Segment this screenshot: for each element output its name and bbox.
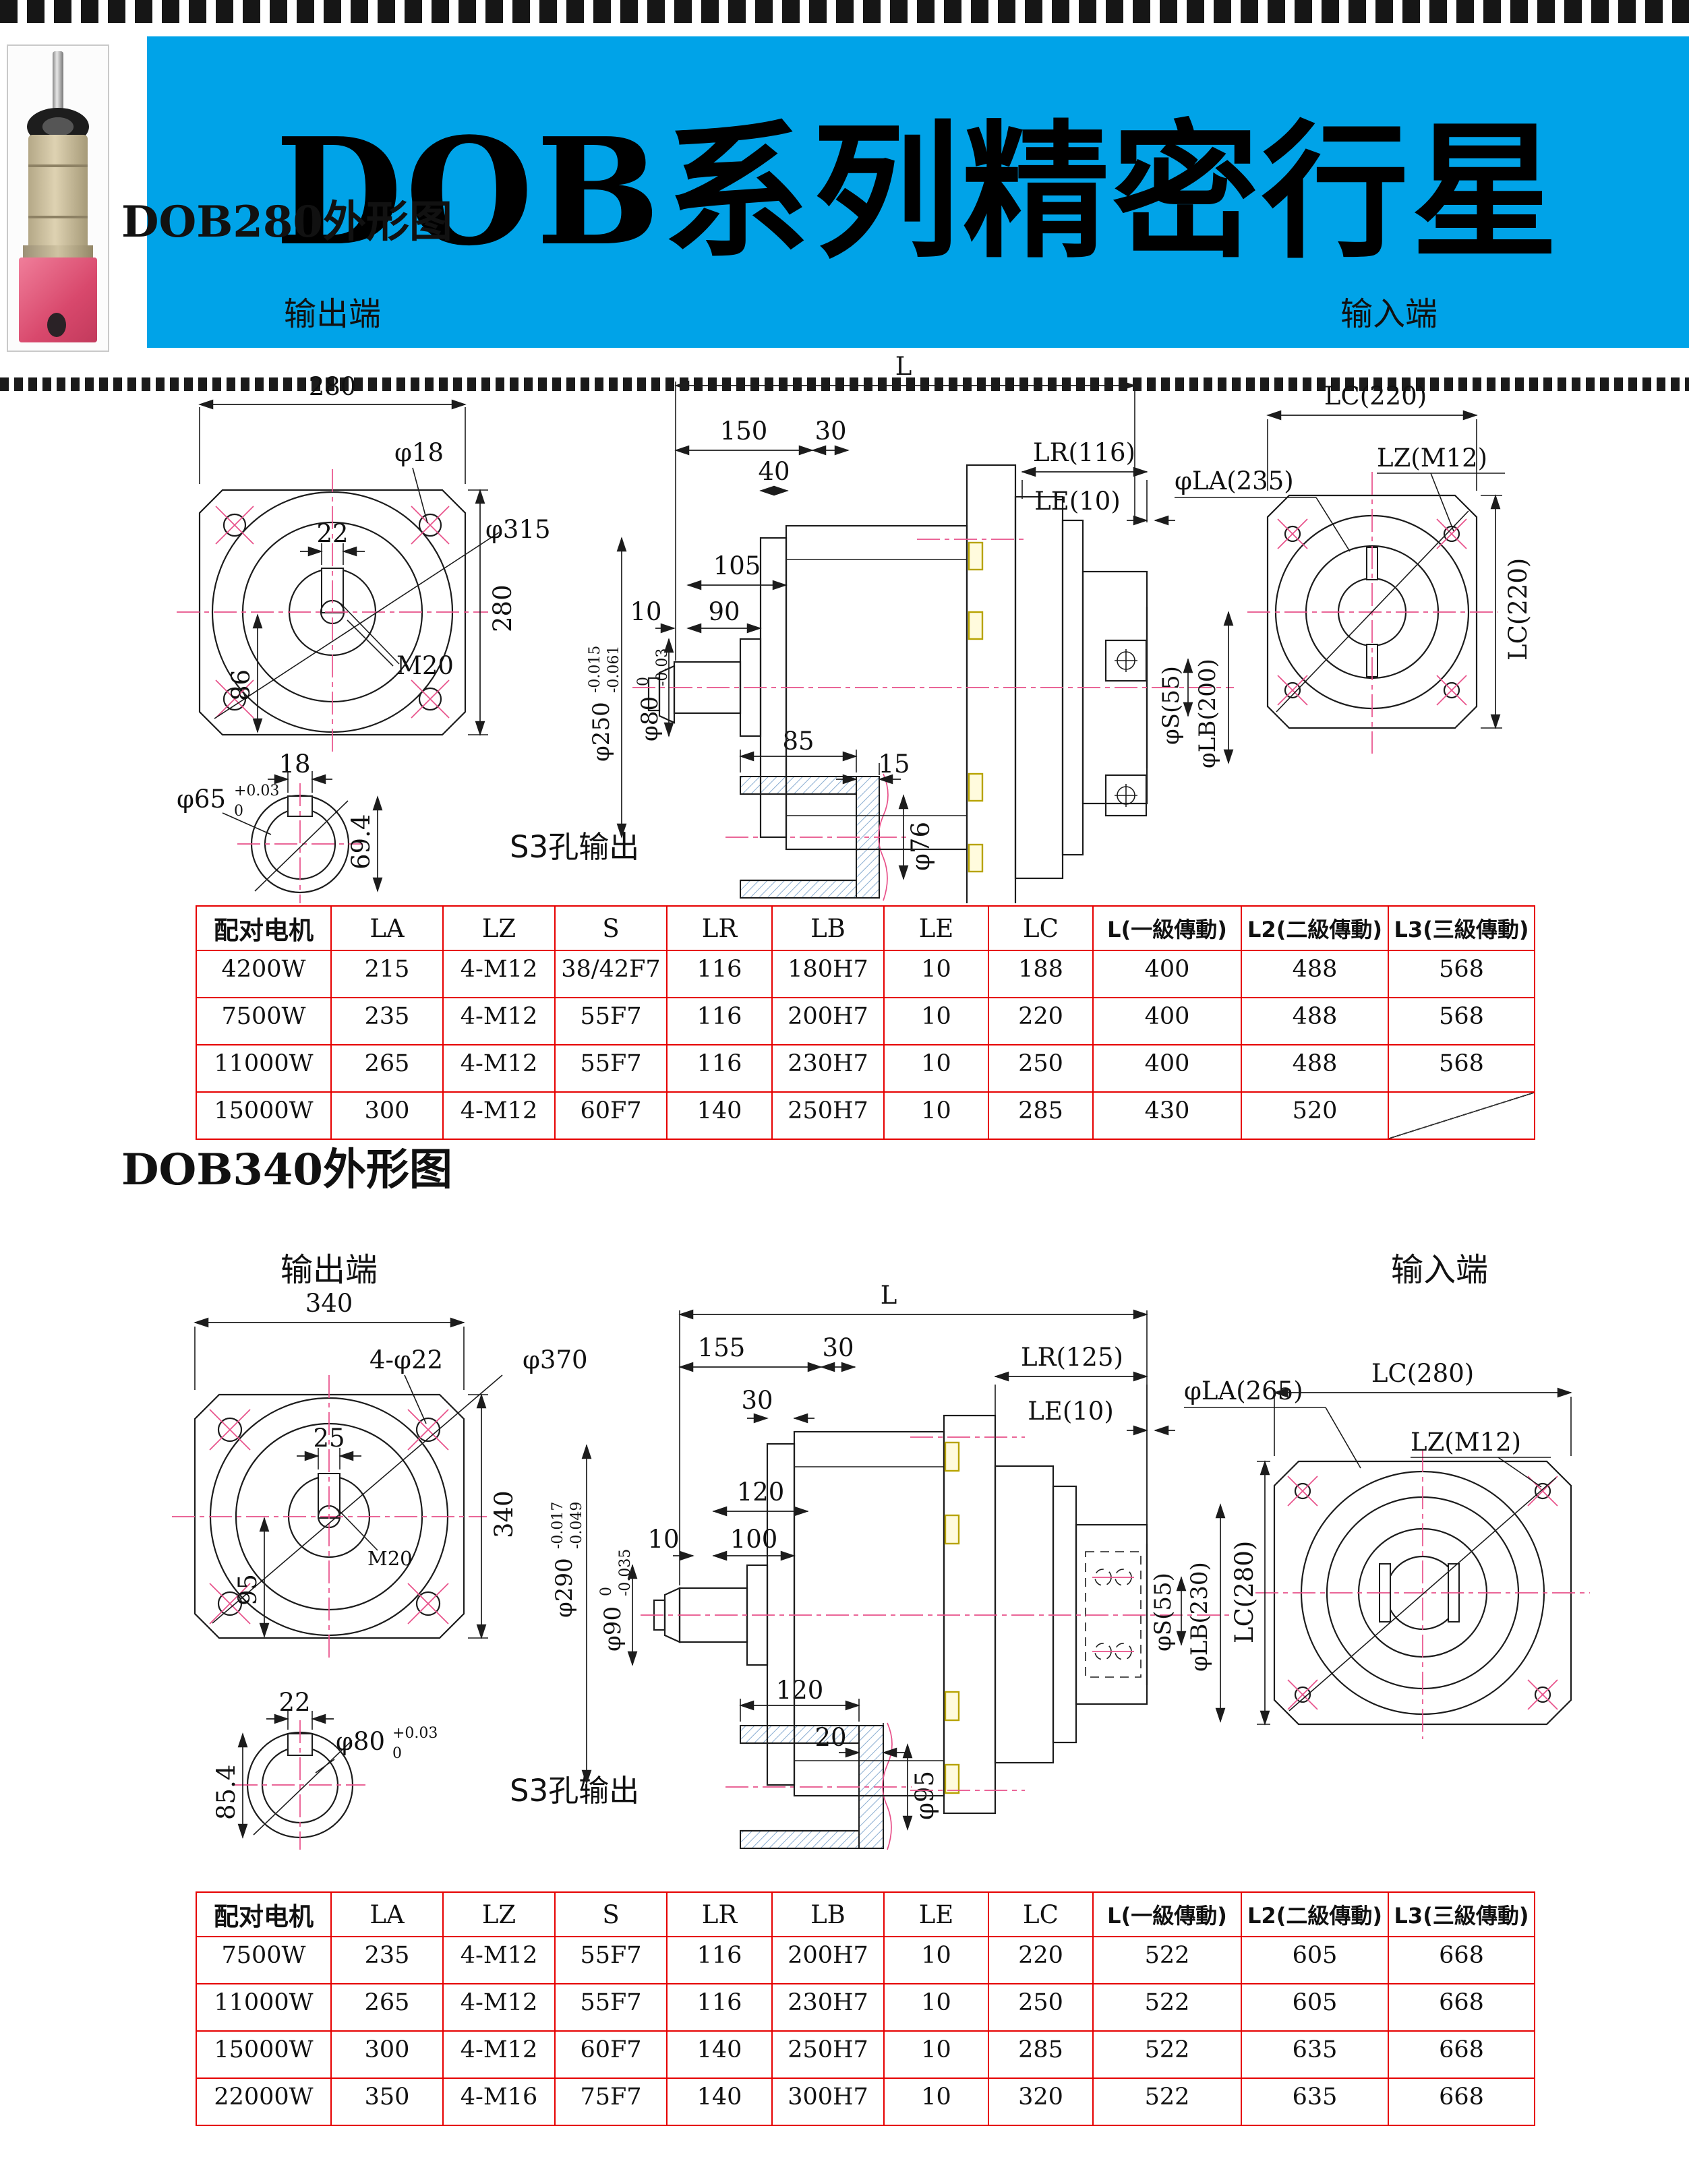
dim-LR: LR(116) xyxy=(1033,438,1135,467)
col-la: LA xyxy=(331,906,443,950)
dim-LC-top: LC(220) xyxy=(1324,382,1427,411)
dob280-output-flange: 280 280 φ18 φ315 22 86 M20 xyxy=(177,372,551,755)
dim-LC-side: LC(280) xyxy=(1230,1541,1259,1643)
svg-text:-0.049: -0.049 xyxy=(568,1502,585,1549)
s3-output-label: S3孔输出 xyxy=(510,829,639,865)
photo-gearbox-body xyxy=(28,135,88,255)
col-l2: L2(二級傳動) xyxy=(1241,906,1388,950)
dob280-spec-table: 配对电机 LA LZ S LR LB LE LC L(一級傳動) L2(二級傳動… xyxy=(196,905,1535,1140)
dob280-shaft-detail: φ65 +0.03 0 18 69.4 xyxy=(177,750,378,903)
col-s: S xyxy=(555,1892,667,1937)
col-lc: LC xyxy=(988,906,1093,950)
dim-L: L xyxy=(881,1281,897,1310)
table-row: 7500W2354-M1255F7116200H710220522605668 xyxy=(196,1937,1535,1984)
svg-text:-0.061: -0.061 xyxy=(605,646,622,693)
dim-LZ: LZ(M12) xyxy=(1411,1428,1521,1457)
page-title: DOB系列精密行星 xyxy=(275,119,1561,266)
table-row: 22000W3504-M1675F7140300H710320522635668 xyxy=(196,2078,1535,2125)
svg-text:φ250: φ250 xyxy=(588,702,615,762)
dim-LC-side: LC(220) xyxy=(1504,558,1533,661)
dim-10: 10 xyxy=(630,597,661,626)
svg-text:-0.035: -0.035 xyxy=(617,1549,634,1596)
dim-340-height: 340 xyxy=(490,1490,518,1538)
col-l1: L(一級傳動) xyxy=(1093,906,1241,950)
dim-phi65-tol-upper: +0.03 xyxy=(234,783,279,799)
col-le: LE xyxy=(884,1892,988,1937)
bolts xyxy=(945,1443,959,1793)
dim-120: 120 xyxy=(776,1676,824,1705)
dim-69-4: 69.4 xyxy=(347,814,376,870)
dob280-input-flange: LC(220) LZ(M12) LC(220) xyxy=(1247,382,1533,754)
table-row: 4200W2154-M1238/42F7116180H7101884004885… xyxy=(196,950,1535,998)
dim-key-width: 25 xyxy=(313,1424,345,1453)
svg-text:-0.015: -0.015 xyxy=(587,646,603,693)
dim-30: 30 xyxy=(814,417,846,446)
svg-text:φ290: φ290 xyxy=(551,1558,578,1618)
dob340-output-flange: 340 4-φ22 φ370 25 95 M20 340 xyxy=(172,1289,588,1660)
dim-30a: 30 xyxy=(822,1333,854,1362)
dim-bolt-circle: φ315 xyxy=(485,515,551,544)
input-end-label: 输入端 xyxy=(1340,295,1438,333)
svg-text:0: 0 xyxy=(635,677,652,686)
dim-280-width: 280 xyxy=(309,372,357,401)
photo-flange xyxy=(23,245,93,259)
section-title-dob280: DOB280外形图 xyxy=(121,201,452,244)
col-lz: LZ xyxy=(443,906,555,950)
dim-LA: φLA(265) xyxy=(1184,1376,1303,1405)
svg-text:-0.017: -0.017 xyxy=(550,1502,566,1549)
dim-phi290: φ290 -0.017 -0.049 xyxy=(550,1502,585,1618)
dob340-shaft-detail: 22 φ80 +0.03 0 85.4 xyxy=(212,1688,438,1850)
dim-LE: LE(10) xyxy=(1034,487,1121,516)
dob340-input-flange: LC(280) LZ(M12) LC(280) xyxy=(1230,1359,1590,1739)
dim-340-width: 340 xyxy=(305,1289,353,1318)
output-end-label: 输出端 xyxy=(284,295,381,333)
dob340-s3-detail: 120 20 φ95 xyxy=(725,1676,939,1850)
col-lr: LR xyxy=(667,1892,772,1937)
dim-LC-top: LC(280) xyxy=(1371,1359,1474,1388)
dim-40: 40 xyxy=(758,457,790,486)
dim-phi80-tol-upper: +0.03 xyxy=(392,1725,438,1742)
dim-LZ: LZ(M12) xyxy=(1377,444,1487,473)
dim-105: 105 xyxy=(713,551,761,580)
col-lz: LZ xyxy=(443,1892,555,1937)
s3-output-label: S3孔输出 xyxy=(510,1773,639,1809)
dim-30b: 30 xyxy=(741,1386,773,1415)
dim-phi250: φ250 -0.015 -0.061 xyxy=(587,646,622,762)
dim-155: 155 xyxy=(698,1333,746,1362)
table-row: 15000W3004-M1260F7140250H710285522635668 xyxy=(196,2031,1535,2078)
dob280-side-view: L 150 30 40 105 10 90 LR(116) LE(10) φLA… xyxy=(587,352,1350,903)
dob340-spec-table: 配对电机 LA LZ S LR LB LE LC L(一級傳動) L2(二級傳動… xyxy=(196,1891,1535,2126)
table-header-row: 配对电机 LA LZ S LR LB LE LC L(一級傳動) L2(二級傳動… xyxy=(196,1892,1535,1937)
output-end-label: 输出端 xyxy=(280,1251,378,1289)
dim-phi80: φ80 0 -0.03 xyxy=(635,648,671,741)
dim-phi65: φ65 xyxy=(177,785,226,814)
input-end-label: 输入端 xyxy=(1391,1251,1488,1289)
dim-280-height: 280 xyxy=(488,584,517,632)
col-s: S xyxy=(555,906,667,950)
dim-LA: φLA(235) xyxy=(1175,466,1294,495)
table-row: 11000W2654-M1255F7116230H710250400488568 xyxy=(196,1045,1535,1092)
col-le: LE xyxy=(884,906,988,950)
dim-phiS: φS(55) xyxy=(1150,1573,1177,1651)
dim-20: 20 xyxy=(814,1723,846,1752)
dim-150: 150 xyxy=(720,417,768,446)
dim-LR: LR(125) xyxy=(1021,1343,1123,1372)
section-title-dob340: DOB340外形图 xyxy=(121,1149,452,1192)
col-l1: L(一級傳動) xyxy=(1093,1892,1241,1937)
col-la: LA xyxy=(331,1892,443,1937)
table-row: 11000W2654-M1255F7116230H710250522605668 xyxy=(196,1984,1535,2031)
dim-phiLB: φLB(230) xyxy=(1186,1562,1213,1672)
dob340-drawing: 输出端 输入端 340 4-φ22 φ370 25 95 M20 340 xyxy=(0,1234,1689,1881)
photo-shaft xyxy=(53,51,63,116)
dim-10: 10 xyxy=(647,1525,679,1554)
dim-bolt-hole: φ18 xyxy=(394,438,444,467)
dim-phi90: φ90 0 -0.035 xyxy=(598,1549,634,1651)
dim-phi80-tol-lower: 0 xyxy=(392,1745,402,1762)
dim-key-width: 22 xyxy=(316,519,348,548)
col-l3: L3(三級傳動) xyxy=(1388,1892,1535,1937)
col-l3: L3(三級傳動) xyxy=(1388,906,1535,950)
dim-phi65-tol-lower: 0 xyxy=(234,803,243,820)
dim-phiLB: φLB(200) xyxy=(1194,659,1221,768)
dim-m20: M20 xyxy=(367,1547,413,1570)
dim-120: 120 xyxy=(737,1478,785,1507)
dim-85-4: 85.4 xyxy=(212,1765,241,1820)
dim-15: 15 xyxy=(878,750,910,779)
col-lc: LC xyxy=(988,1892,1093,1937)
dim-LE: LE(10) xyxy=(1028,1397,1114,1426)
dim-phi80: φ80 xyxy=(336,1727,385,1756)
dim-bolt-circle: φ370 xyxy=(523,1345,588,1374)
dim-phiS: φS(55) xyxy=(1158,666,1185,745)
table-header-row: 配对电机 LA LZ S LR LB LE LC L(一級傳動) L2(二級傳動… xyxy=(196,906,1535,950)
dim-phi76: φ76 xyxy=(906,822,935,871)
dim-m20: M20 xyxy=(396,651,454,680)
col-lb: LB xyxy=(772,906,884,950)
dim-18: 18 xyxy=(278,750,310,779)
dim-95: 95 xyxy=(233,1574,262,1606)
col-motor: 配对电机 xyxy=(196,1892,331,1937)
dim-bolt-hole: 4-φ22 xyxy=(369,1345,443,1374)
dim-L: L xyxy=(895,352,912,381)
dim-86: 86 xyxy=(227,669,256,701)
dim-22: 22 xyxy=(278,1688,310,1717)
dob280-drawing: 输出端 输入端 280 280 φ18 φ315 22 86 M20 xyxy=(0,283,1689,903)
top-dashed-border xyxy=(0,0,1689,23)
dim-90: 90 xyxy=(708,597,740,626)
dim-85: 85 xyxy=(782,727,814,756)
svg-text:φ90: φ90 xyxy=(599,1606,626,1651)
dim-100: 100 xyxy=(730,1525,778,1554)
table-row: 15000W3004-M1260F7140250H710285430520 xyxy=(196,1092,1535,1139)
svg-text:0: 0 xyxy=(598,1587,615,1596)
col-l2: L2(二級傳動) xyxy=(1241,1892,1388,1937)
dob280-s3-detail: 85 15 φ76 xyxy=(725,727,935,901)
table-row: 7500W2354-M1255F7116200H710220400488568 xyxy=(196,998,1535,1045)
svg-text:φ80: φ80 xyxy=(636,696,663,741)
bolts xyxy=(969,543,982,872)
col-motor: 配对电机 xyxy=(196,906,331,950)
empty-cell-slash xyxy=(1388,1092,1535,1139)
col-lr: LR xyxy=(667,906,772,950)
col-lb: LB xyxy=(772,1892,884,1937)
